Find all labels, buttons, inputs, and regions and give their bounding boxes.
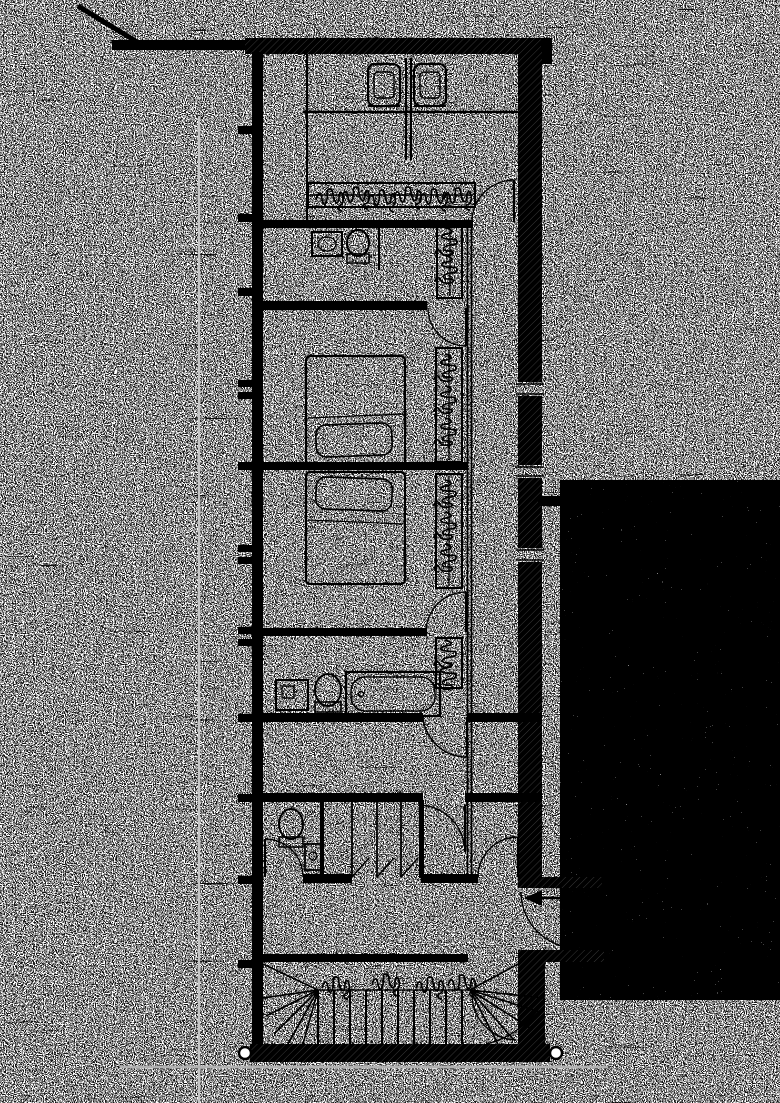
stall-end-wall <box>419 800 424 878</box>
floor-plan-drawing <box>0 0 780 1103</box>
wall-bedroom1 <box>263 301 427 310</box>
canopy-bar <box>112 40 247 50</box>
column-circle-right <box>550 1047 562 1059</box>
lower-right-wall <box>592 500 601 888</box>
wall-hall-top-right <box>467 713 542 722</box>
wall-entry-left <box>303 874 352 883</box>
left-facade-wall <box>252 52 263 1048</box>
wall-stairhall <box>263 954 468 962</box>
bottom-wall <box>250 1044 550 1062</box>
wall-bathroom <box>263 628 427 636</box>
wall-hall-bottom <box>263 793 423 802</box>
wall-hall-top <box>263 713 423 722</box>
porch-bottom-wall <box>518 950 604 962</box>
top-wall-end <box>541 38 552 64</box>
top-wall <box>245 38 545 54</box>
wall-hall-bottom-right <box>465 793 542 802</box>
wall-entry-mid <box>421 874 478 883</box>
terrace-stipple <box>592 505 682 958</box>
scanned-floor-plan-page <box>0 0 780 1103</box>
column-circle-left <box>239 1047 251 1059</box>
porch-top-wall <box>518 877 602 888</box>
